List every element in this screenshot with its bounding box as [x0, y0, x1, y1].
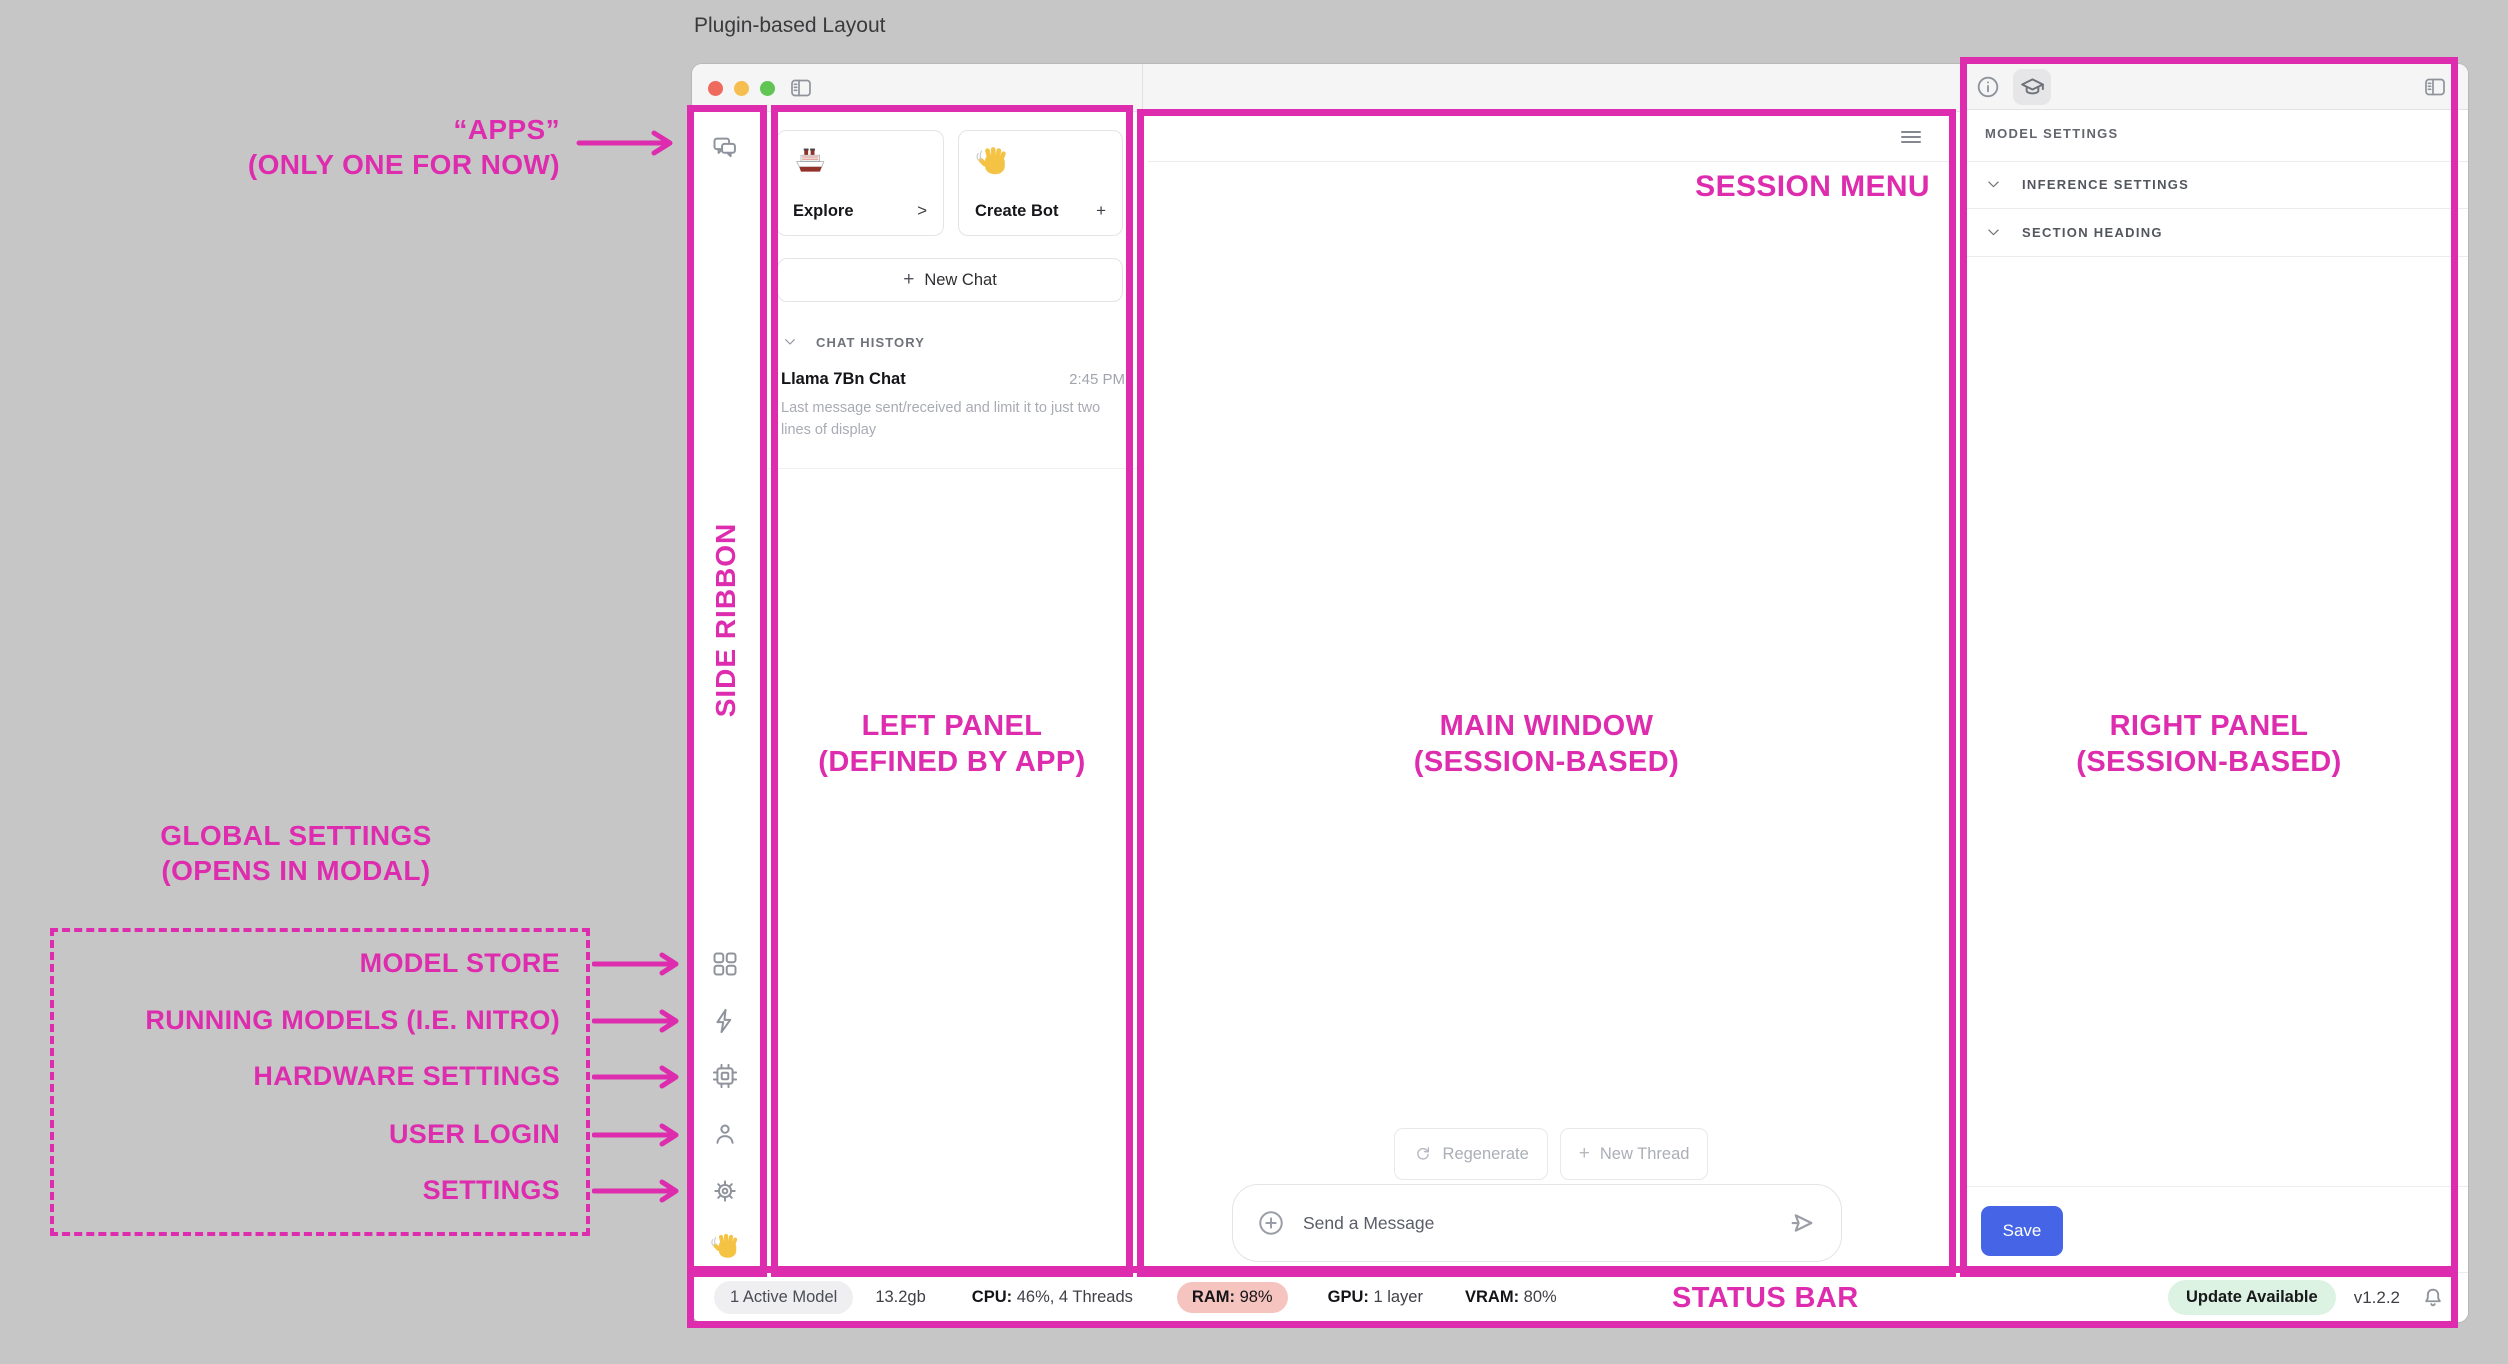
explore-card[interactable]: Explore >: [776, 130, 944, 236]
main-window-annotation-line2: (SESSION-BASED): [1137, 744, 1956, 780]
refresh-icon: [1413, 1144, 1433, 1164]
settings-gear-icon[interactable]: [710, 1176, 740, 1206]
panel-toggle-icon[interactable]: [2416, 69, 2454, 105]
explore-card-label: Explore: [793, 202, 854, 221]
regenerate-button[interactable]: Regenerate: [1394, 1128, 1548, 1180]
global-settings-annotation-line1: GLOBAL SETTINGS: [96, 818, 496, 853]
running-models-icon[interactable]: [710, 1006, 740, 1036]
user-login-icon[interactable]: [710, 1119, 740, 1149]
zoom-button[interactable]: [760, 81, 775, 96]
right-panel-annotation-line2: (SESSION-BASED): [1960, 744, 2458, 780]
new-chat-button[interactable]: + New Chat: [777, 258, 1123, 302]
chat-preview: Last message sent/received and limit it …: [781, 397, 1115, 441]
list-divider: [768, 468, 1138, 469]
chat-title: Llama 7Bn Chat: [781, 370, 906, 389]
main-window-header: [1148, 112, 1954, 162]
global-settings-annotation-line2: (OPENS IN MODAL): [96, 853, 496, 888]
create-bot-card-label: Create Bot: [975, 202, 1058, 221]
bell-icon[interactable]: [2420, 1285, 2446, 1311]
apps-annotation-line2: (ONLY ONE FOR NOW): [120, 147, 560, 182]
hardware-settings-icon[interactable]: [710, 1061, 740, 1091]
page-title: Plugin-based Layout: [694, 14, 885, 38]
chevron-down-icon: [1985, 176, 2002, 193]
graduation-cap-icon: [2019, 74, 2046, 101]
plus-icon: +: [1096, 201, 1106, 221]
right-panel-annotation: RIGHT PANEL (SESSION-BASED): [1960, 708, 2458, 780]
chat-list-item[interactable]: Llama 7Bn Chat 2:45 PM Last message sent…: [781, 370, 1125, 441]
ram-label: RAM:: [1192, 1288, 1235, 1306]
create-bot-card[interactable]: Create Bot +: [958, 130, 1123, 236]
model-size: 13.2gb: [875, 1288, 925, 1307]
chevron-down-icon: [1985, 224, 2002, 241]
plus-icon: +: [1579, 1143, 1590, 1165]
message-input[interactable]: [1303, 1213, 1769, 1234]
settings-arrow: [592, 1179, 692, 1203]
message-input-bar: [1232, 1184, 1842, 1262]
new-chat-label: New Chat: [924, 271, 996, 290]
main-window: Regenerate + New Thread: [1148, 112, 1954, 1272]
apps-annotation: “APPS” (ONLY ONE FOR NOW): [120, 112, 560, 182]
wave-emoji-icon: [975, 145, 1106, 184]
vram-label: VRAM:: [1465, 1288, 1519, 1306]
save-button[interactable]: Save: [1981, 1206, 2063, 1256]
status-bar-right: Update Available v1.2.2: [2168, 1280, 2446, 1315]
sidebar-toggle-icon[interactable]: [788, 76, 814, 100]
new-thread-button[interactable]: + New Thread: [1560, 1128, 1709, 1180]
cpu-label: CPU:: [972, 1288, 1012, 1306]
minimize-button[interactable]: [734, 81, 749, 96]
right-panel: MODEL SETTINGS INFERENCE SETTINGS SECTIO…: [1960, 64, 2468, 1272]
titlebar-divider: [1142, 64, 1143, 111]
info-tab[interactable]: [1969, 69, 2007, 105]
right-panel-header: [1961, 64, 2468, 110]
close-button[interactable]: [708, 81, 723, 96]
update-available-badge[interactable]: Update Available: [2168, 1280, 2336, 1315]
assistant-tab[interactable]: [2013, 69, 2051, 105]
left-panel: Explore >: [768, 112, 1138, 1272]
left-panel-annotation-line1: LEFT PANEL: [771, 708, 1133, 744]
hardware-settings-arrow: [592, 1065, 692, 1089]
new-thread-label: New Thread: [1600, 1145, 1690, 1164]
model-store-annotation: MODEL STORE: [60, 948, 560, 979]
wave-emoji-icon[interactable]: [710, 1232, 740, 1262]
chevron-right-icon: >: [917, 201, 927, 221]
hardware-settings-annotation: HARDWARE SETTINGS: [60, 1061, 560, 1092]
main-window-annotation-line1: MAIN WINDOW: [1137, 708, 1956, 744]
status-bar: 1 Active Model 13.2gb CPU: 46%, 4 Thread…: [692, 1272, 2468, 1322]
chat-history-label: CHAT HISTORY: [816, 335, 925, 350]
apps-arrow: [576, 130, 686, 156]
chat-history-header[interactable]: CHAT HISTORY: [782, 334, 925, 350]
design-canvas: Plugin-based Layout: [0, 0, 2508, 1364]
app-version: v1.2.2: [2354, 1288, 2400, 1308]
gpu-value: 1 layer: [1373, 1288, 1423, 1306]
gpu-stat: GPU: 1 layer: [1328, 1288, 1423, 1307]
model-store-arrow: [592, 952, 692, 976]
thread-actions: Regenerate + New Thread: [1148, 1128, 1954, 1180]
active-model-badge[interactable]: 1 Active Model: [714, 1281, 853, 1314]
app-window: Explore >: [692, 64, 2468, 1322]
send-icon[interactable]: [1787, 1208, 1817, 1238]
session-menu-annotation: SESSION MENU: [1560, 170, 1930, 204]
gpu-label: GPU:: [1328, 1288, 1369, 1306]
cpu-stat: CPU: 46%, 4 Threads: [972, 1288, 1133, 1307]
inference-settings-row[interactable]: INFERENCE SETTINGS: [1961, 161, 2468, 209]
ship-emoji-icon: [793, 145, 927, 184]
circle-plus-icon[interactable]: [1257, 1209, 1285, 1237]
side-ribbon-annotation: SIDE RIBBON: [710, 523, 742, 718]
divider: [1961, 1186, 2468, 1187]
section-heading-row[interactable]: SECTION HEADING: [1961, 209, 2468, 257]
chat-timestamp: 2:45 PM: [1069, 371, 1125, 388]
model-settings-heading: MODEL SETTINGS: [1985, 126, 2119, 141]
main-window-annotation: MAIN WINDOW (SESSION-BASED): [1137, 708, 1956, 780]
chat-app-icon[interactable]: [710, 133, 740, 163]
cpu-value: 46%, 4 Threads: [1017, 1288, 1133, 1306]
inference-settings-label: INFERENCE SETTINGS: [2022, 177, 2189, 192]
session-menu-icon[interactable]: [1898, 125, 1924, 149]
user-login-annotation: USER LOGIN: [60, 1119, 560, 1150]
apps-annotation-line1: “APPS”: [120, 112, 560, 147]
regenerate-label: Regenerate: [1443, 1145, 1529, 1164]
right-panel-annotation-line1: RIGHT PANEL: [1960, 708, 2458, 744]
vram-value: 80%: [1524, 1288, 1557, 1306]
ram-stat-badge: RAM: 98%: [1177, 1282, 1288, 1313]
left-panel-annotation: LEFT PANEL (DEFINED BY APP): [771, 708, 1133, 780]
global-settings-annotation: GLOBAL SETTINGS (OPENS IN MODAL): [96, 818, 496, 888]
status-bar-annotation: STATUS BAR: [1672, 1282, 1859, 1315]
plus-icon: +: [903, 269, 914, 291]
section-heading-label: SECTION HEADING: [2022, 225, 2163, 240]
chevron-down-icon: [782, 334, 798, 350]
user-login-arrow: [592, 1123, 692, 1147]
vram-stat: VRAM: 80%: [1465, 1288, 1557, 1307]
running-models-annotation: RUNNING MODELS (I.E. NITRO): [60, 1005, 560, 1036]
model-store-icon[interactable]: [710, 949, 740, 979]
running-models-arrow: [592, 1009, 692, 1033]
ram-value: 98%: [1240, 1288, 1273, 1306]
settings-annotation: SETTINGS: [60, 1175, 560, 1206]
left-panel-annotation-line2: (DEFINED BY APP): [771, 744, 1133, 780]
